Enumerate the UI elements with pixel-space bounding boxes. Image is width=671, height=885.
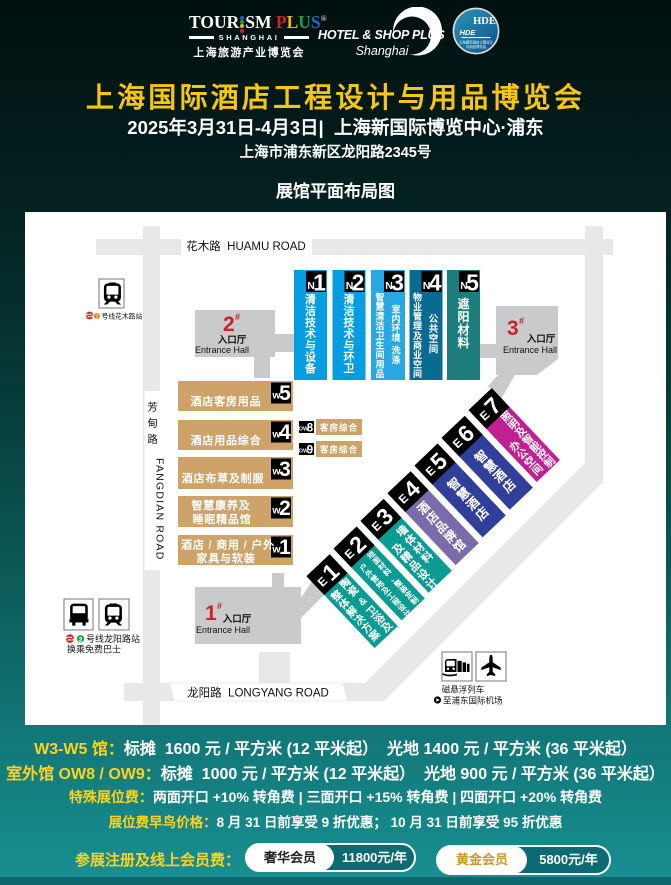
svg-text:上海国际酒店工程设计: 上海国际酒店工程设计 xyxy=(459,40,494,45)
svg-text:4: 4 xyxy=(429,270,442,296)
svg-text:花木路 HUAMU ROAD: 花木路 HUAMU ROAD xyxy=(186,239,305,253)
svg-text:HDE: HDE xyxy=(460,28,477,37)
svg-text:9: 9 xyxy=(307,445,313,457)
svg-text:家具与软装: 家具与软装 xyxy=(197,551,256,565)
svg-text:#: # xyxy=(519,316,524,326)
svg-text:号线龙阳路站: 号线龙阳路站 xyxy=(86,633,140,644)
svg-text:客房综合: 客房综合 xyxy=(319,445,358,455)
svg-text:Entrance Hall: Entrance Hall xyxy=(503,345,557,355)
svg-text:与用品博览会: 与用品博览会 xyxy=(466,44,487,49)
svg-text:至浦东国际机场: 至浦东国际机场 xyxy=(443,696,503,706)
svg-text:智慧清洁卫生间用品: 智慧清洁卫生间用品 xyxy=(374,291,384,379)
svg-text:#: # xyxy=(217,601,222,611)
svg-text:2: 2 xyxy=(352,270,365,296)
svg-text:入口厅: 入口厅 xyxy=(222,614,252,625)
svg-text:号线花木路站: 号线花木路站 xyxy=(102,312,143,321)
svg-text:清洁技术与环卫: 清洁技术与环卫 xyxy=(343,292,356,375)
svg-text:FANGDIAN ROAD: FANGDIAN ROAD xyxy=(154,458,166,561)
svg-text:2: 2 xyxy=(279,497,291,520)
svg-text:1: 1 xyxy=(205,602,217,625)
svg-text:3: 3 xyxy=(391,270,404,296)
svg-text:8: 8 xyxy=(307,423,314,435)
svg-text:室内环境洗涤: 室内环境洗涤 xyxy=(391,303,400,365)
svg-text:龙阳路 LONGYANG ROAD: 龙阳路 LONGYANG ROAD xyxy=(187,686,329,700)
svg-text:1: 1 xyxy=(279,536,291,559)
svg-text:酒店用品综合: 酒店用品综合 xyxy=(191,433,262,447)
svg-text:换乘免费巴士: 换乘免费巴士 xyxy=(67,644,121,655)
svg-text:酒店客房用品: 酒店客房用品 xyxy=(191,394,262,408)
svg-text:公共空间: 公共空间 xyxy=(429,314,439,356)
svg-text:2: 2 xyxy=(223,313,235,336)
svg-text:HDE: HDE xyxy=(473,16,496,27)
svg-text:5: 5 xyxy=(279,382,291,405)
svg-text:遮阳材料: 遮阳材料 xyxy=(456,296,469,350)
svg-text:物业管理及商业空间: 物业管理及商业空间 xyxy=(413,291,423,379)
svg-text:清洁技术与设备: 清洁技术与设备 xyxy=(304,292,317,375)
svg-text:芳甸路: 芳甸路 xyxy=(147,401,158,446)
svg-text:酒店布草及制服: 酒店布草及制服 xyxy=(182,471,265,485)
svg-text:酒店 / 商用 / 户外: 酒店 / 商用 / 户外 xyxy=(181,538,275,552)
svg-text:Entrance Hall: Entrance Hall xyxy=(196,625,250,635)
svg-text:睡眠精品馆: 睡眠精品馆 xyxy=(193,512,252,526)
svg-text:智慧康养及: 智慧康养及 xyxy=(192,498,251,512)
svg-text:3: 3 xyxy=(507,317,519,340)
svg-text:4: 4 xyxy=(279,421,291,444)
svg-text:5: 5 xyxy=(466,270,479,296)
svg-text:#: # xyxy=(235,312,240,322)
svg-text:入口厅: 入口厅 xyxy=(526,334,556,345)
svg-text:7: 7 xyxy=(95,314,98,320)
svg-text:客房综合: 客房综合 xyxy=(319,423,358,433)
svg-text:Entrance Hall: Entrance Hall xyxy=(195,345,249,355)
svg-text:3: 3 xyxy=(279,458,291,481)
svg-text:1: 1 xyxy=(313,270,326,296)
svg-text:2: 2 xyxy=(79,637,83,644)
svg-text:磁悬浮列车: 磁悬浮列车 xyxy=(442,685,485,695)
